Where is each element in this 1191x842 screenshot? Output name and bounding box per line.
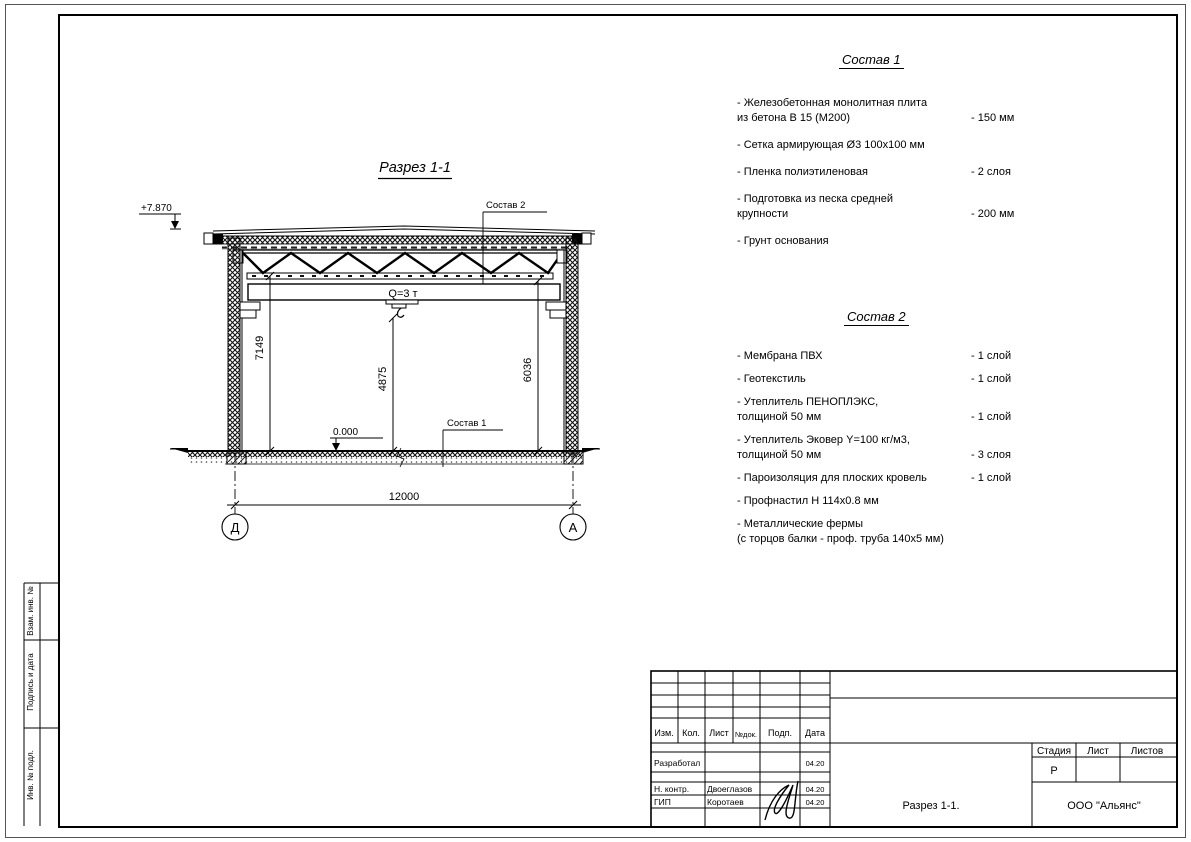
comp2-list: - Мембрана ПВХ - 1 слой - Геотекстиль - … — [737, 349, 1033, 555]
tb-row-role: ГИП — [654, 797, 671, 807]
leader-comp1-label: Состав 1 — [447, 418, 486, 429]
tb-row-date: 04.20 — [806, 759, 825, 768]
crane-capacity-label: Q=3 т — [388, 288, 417, 300]
side-strip-cell: Инв. № подл. — [26, 750, 35, 800]
comp1-heading: Состав 1 — [839, 52, 904, 69]
truss — [233, 250, 567, 279]
material-name: - Профнастил Н 114х0.8 мм — [737, 494, 971, 509]
axis-left-label: Д — [231, 520, 240, 535]
material-value: - 2 слоя — [971, 165, 1033, 180]
material-name: - Утеплитель Эковер Y=100 кг/м3, толщино… — [737, 433, 971, 463]
material-name: - Железобетонная монолитная плита из бет… — [737, 96, 971, 126]
list-item: - Железобетонная монолитная плита из бет… — [737, 96, 1033, 126]
tb-stage-label: Стадия — [1037, 746, 1071, 757]
foundation-left — [227, 451, 246, 464]
material-value: - 3 слоя — [971, 448, 1033, 463]
axis-right-label: А — [569, 520, 578, 535]
list-item: - Утеплитель ПЕНОПЛЭКС, толщиной 50 мм -… — [737, 395, 1033, 425]
tb-header-list: Лист — [709, 728, 729, 738]
list-item: - Профнастил Н 114х0.8 мм — [737, 494, 1033, 509]
side-strip-cell: Взам. инв. № — [26, 586, 35, 636]
tb-header-data: Дата — [805, 728, 825, 738]
list-item: - Утеплитель Эковер Y=100 кг/м3, толщино… — [737, 433, 1033, 463]
comp1-list: - Железобетонная монолитная плита из бет… — [737, 96, 1033, 261]
roof — [204, 226, 595, 249]
material-name: - Подготовка из песка средней крупности — [737, 192, 971, 222]
drawing-sheet: Взам. инв. № Подпись и дата Инв. № подл.… — [0, 0, 1191, 842]
material-value: - 1 слой — [971, 410, 1033, 425]
list-item: - Геотекстиль - 1 слой — [737, 372, 1033, 387]
list-item: - Подготовка из песка средней крупности … — [737, 192, 1033, 222]
material-value: - 1 слой — [971, 349, 1033, 364]
dim-height-right: 6036 — [522, 358, 534, 382]
tb-header-izm: Изм. — [654, 728, 673, 738]
tb-row-date: 04.20 — [806, 798, 825, 807]
material-name: - Пароизоляция для плоских кровель — [737, 471, 971, 486]
side-strip-cell: Подпись и дата — [26, 653, 35, 711]
material-value: - 1 слой — [971, 471, 1033, 486]
tb-header-kol: Кол. — [682, 728, 700, 738]
material-value: - 150 мм — [971, 111, 1033, 126]
tb-row-name: Двоеглазов — [707, 784, 753, 794]
material-name: - Грунт основания — [737, 234, 971, 249]
comp2-heading: Состав 2 — [844, 309, 909, 326]
tb-row-date: 04.20 — [806, 785, 825, 794]
list-item: - Мембрана ПВХ - 1 слой — [737, 349, 1033, 364]
material-name: - Утеплитель ПЕНОПЛЭКС, толщиной 50 мм — [737, 395, 971, 425]
list-item: - Сетка армирующая Ø3 100х100 мм — [737, 138, 1033, 153]
material-name: - Сетка армирующая Ø3 100х100 мм — [737, 138, 971, 153]
tb-row-role: Разработал — [654, 758, 700, 768]
elevation-zero-label: 0.000 — [333, 427, 358, 438]
material-value: - 1 слой — [971, 372, 1033, 387]
material-value: - 200 мм — [971, 207, 1033, 222]
elevation-top-mark — [139, 214, 181, 229]
tb-doc-title: Разрез 1-1. — [902, 800, 959, 812]
tb-row-name: Коротаев — [707, 797, 744, 807]
list-item: - Металлические фермы (с торцов балки - … — [737, 517, 1033, 547]
tb-sheets-label: Листов — [1131, 746, 1164, 757]
dim-height-center: 4875 — [377, 367, 389, 391]
list-item: - Грунт основания — [737, 234, 1033, 249]
dim-span: 12000 — [389, 491, 420, 503]
material-name: - Металлические фермы (с торцов балки - … — [737, 517, 971, 547]
material-name: - Геотекстиль — [737, 372, 971, 387]
tb-sheet-label: Лист — [1087, 746, 1109, 757]
leader-comp2-label: Состав 2 — [486, 200, 525, 211]
material-name: - Мембрана ПВХ — [737, 349, 971, 364]
list-item: - Пароизоляция для плоских кровель - 1 с… — [737, 471, 1033, 486]
elevation-top-label: +7.870 — [141, 203, 172, 214]
foundation-right — [564, 451, 583, 464]
elevation-zero-mark — [330, 438, 383, 451]
crane-hook-icon — [397, 308, 404, 317]
tb-company: ООО "Альянс" — [1067, 800, 1141, 812]
tb-header-podp: Подп. — [768, 728, 792, 738]
tb-row-role: Н. контр. — [654, 784, 689, 794]
tb-header-ndok: №док. — [735, 730, 757, 739]
tb-stage-value: Р — [1050, 765, 1057, 777]
signature — [765, 781, 798, 820]
section-title: Разрез 1-1 — [379, 160, 451, 176]
list-item: - Пленка полиэтиленовая - 2 слоя — [737, 165, 1033, 180]
material-name: - Пленка полиэтиленовая — [737, 165, 971, 180]
dim-height-left: 7149 — [254, 336, 266, 360]
